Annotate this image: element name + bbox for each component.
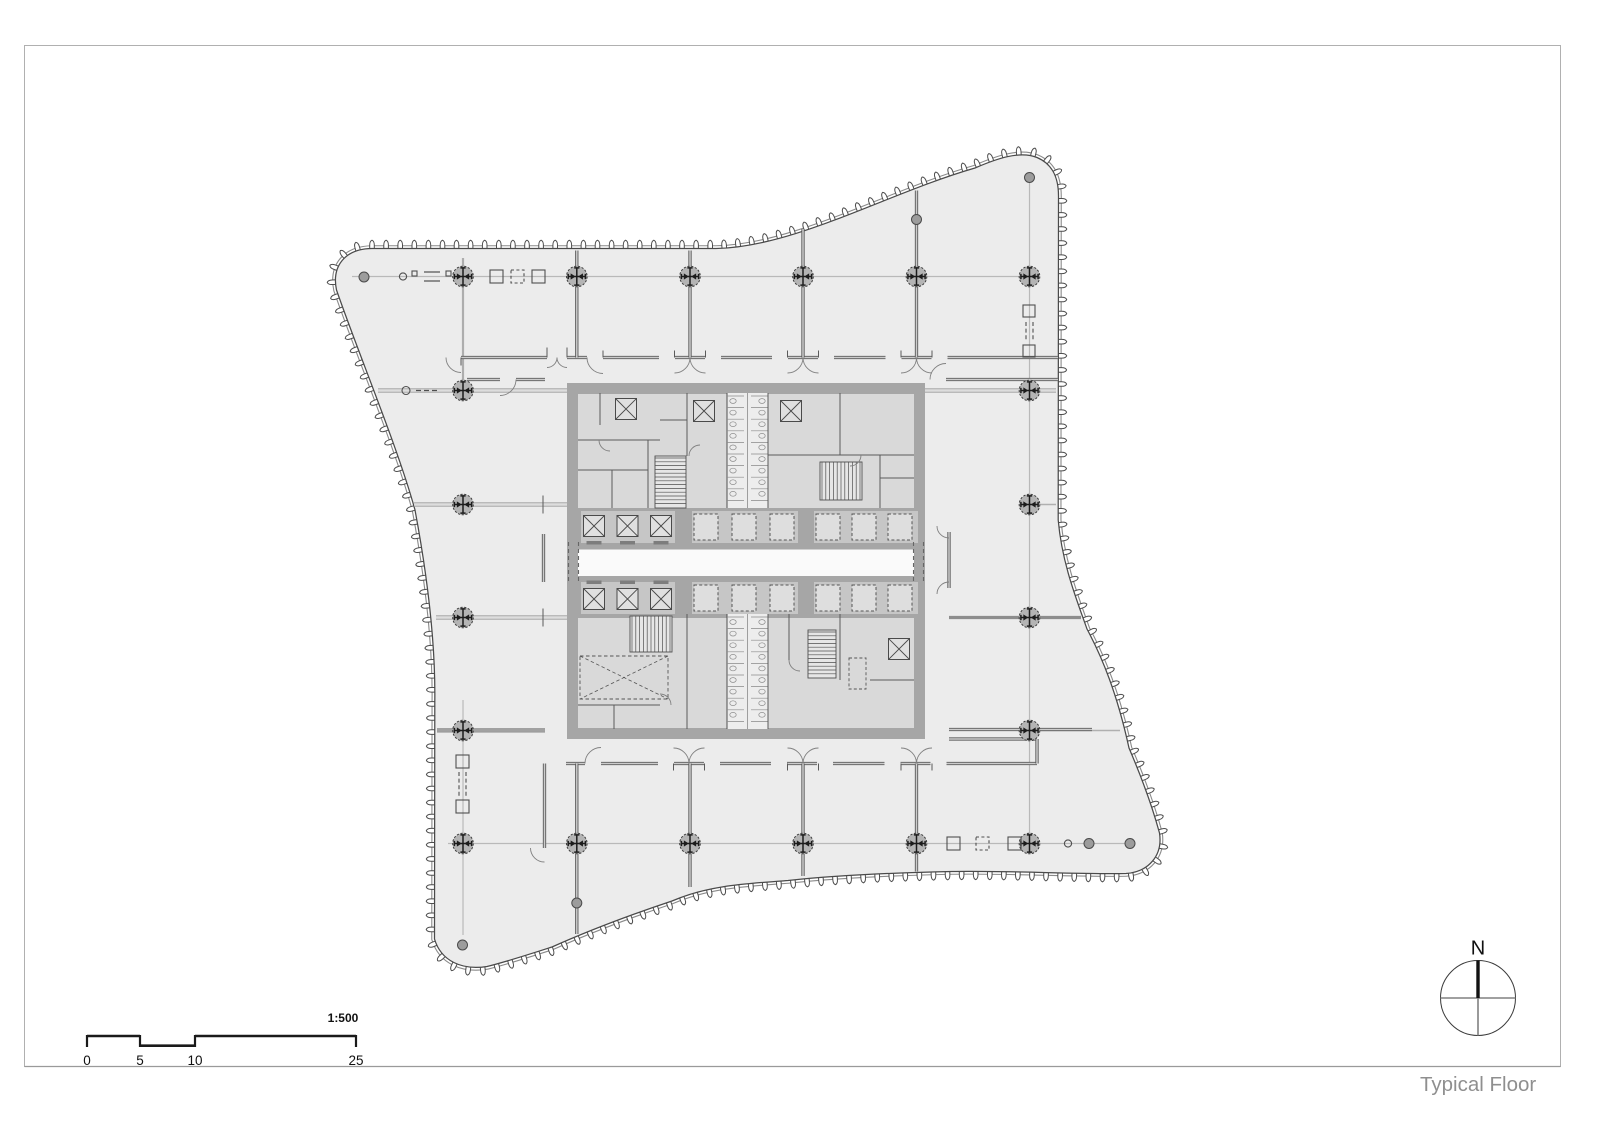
svg-text:0: 0 (83, 1053, 91, 1068)
svg-text:1:500: 1:500 (328, 1011, 359, 1025)
svg-text:25: 25 (348, 1053, 363, 1068)
svg-text:Typical Floor: Typical Floor (1420, 1073, 1536, 1096)
svg-text:5: 5 (136, 1053, 144, 1068)
svg-text:10: 10 (187, 1053, 202, 1068)
svg-text:N: N (1471, 938, 1485, 960)
